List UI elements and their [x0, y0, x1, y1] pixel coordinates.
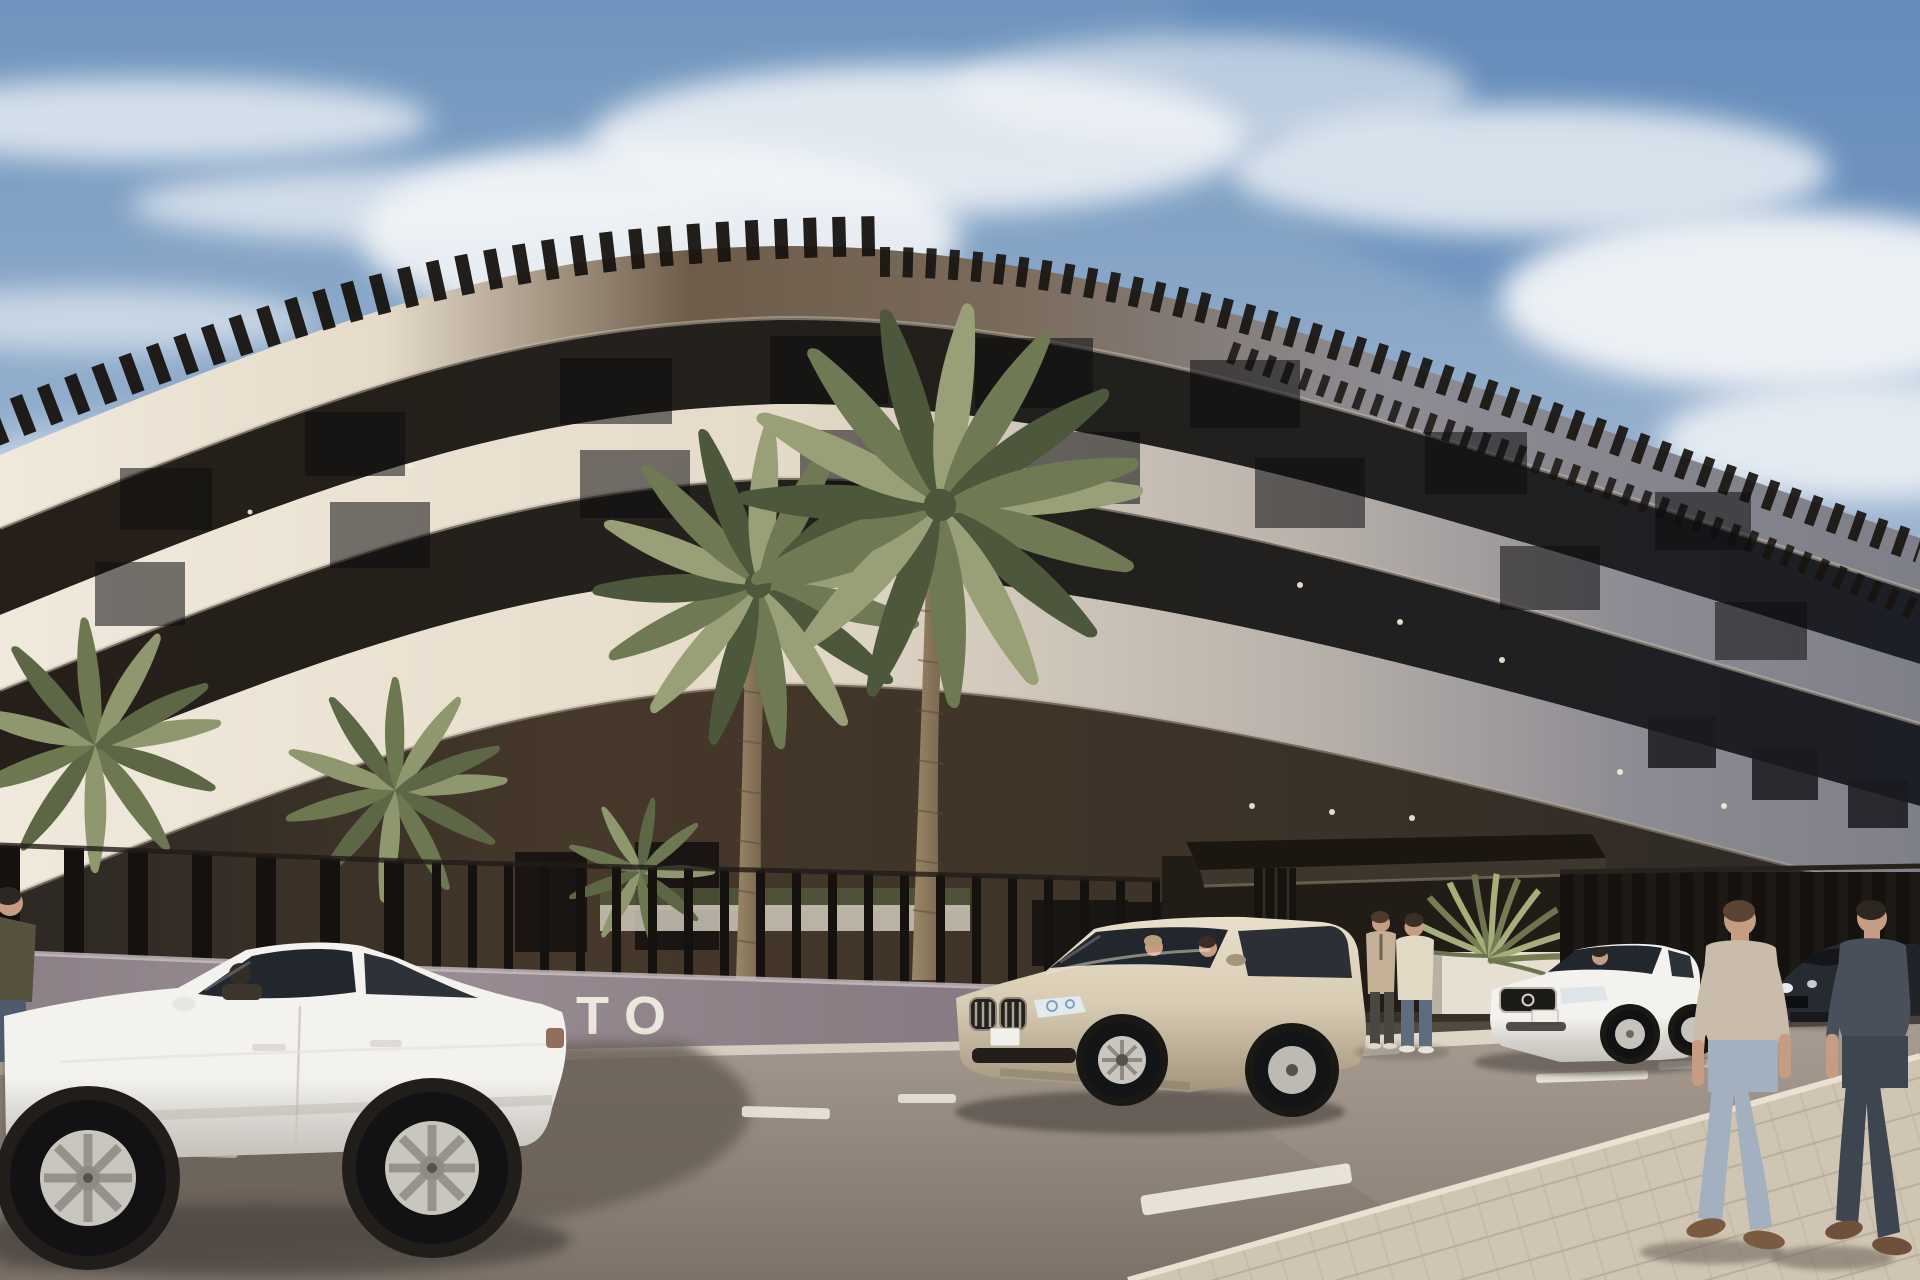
architectural-render: TO	[0, 0, 1920, 1280]
front-wheel	[0, 1086, 180, 1270]
render-canvas: TO	[0, 0, 1920, 1280]
suv-front-wheel	[1076, 1014, 1168, 1106]
license-plate	[990, 1028, 1020, 1046]
grille	[1500, 988, 1556, 1012]
wall-sign-text: TO	[576, 986, 682, 1046]
rear-wheel	[342, 1078, 522, 1258]
suv-rear-wheel	[1245, 1023, 1339, 1117]
tail-lamp	[546, 1028, 564, 1048]
